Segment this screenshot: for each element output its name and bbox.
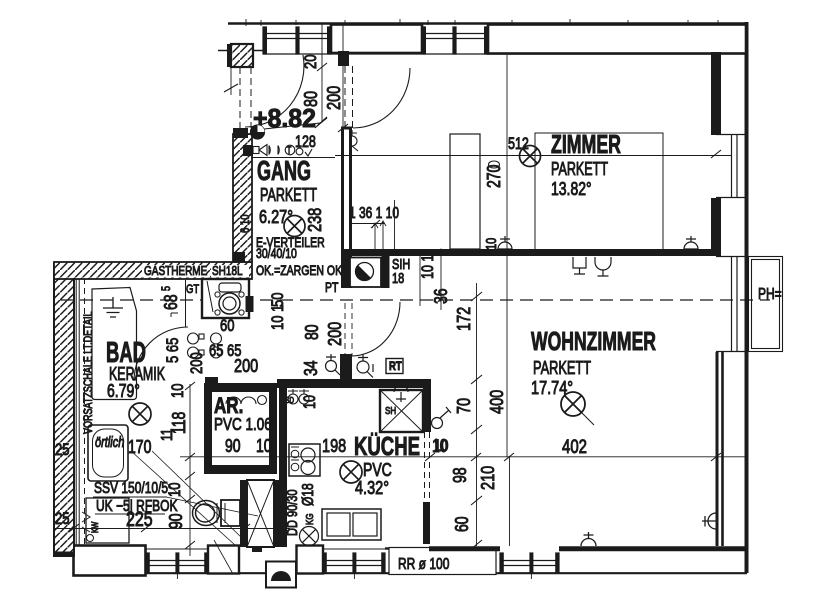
svg-text:10: 10 [434,436,449,455]
svg-text:10: 10 [256,436,272,456]
svg-text:198: 198 [322,436,346,457]
svg-text:200: 200 [234,356,258,377]
svg-text:SSV 150/10/5: SSV 150/10/5 [94,480,168,497]
svg-text:PT: PT [325,280,339,295]
svg-text:10 1: 10 1 [419,255,437,279]
svg-text:200: 200 [187,352,206,374]
svg-text:SD: SD [285,395,294,405]
svg-text:60: 60 [220,316,235,335]
svg-text:34: 34 [301,360,321,376]
svg-text:PVC 1.06°: PVC 1.06° [214,414,277,434]
svg-text:400: 400 [487,390,508,414]
svg-text:11: 11 [159,429,176,442]
svg-text:PARKETT: PARKETT [551,159,608,179]
svg-text:SH18L: SH18L [212,263,243,278]
svg-text:GANG: GANG [257,155,311,186]
svg-text:90: 90 [166,513,186,529]
svg-text:98: 98 [450,467,470,483]
svg-text:18: 18 [392,271,404,287]
svg-text:RR ø 100: RR ø 100 [398,556,450,573]
svg-text:SH: SH [385,406,396,417]
svg-text:13.82°: 13.82° [551,179,592,199]
svg-text:10: 10 [168,384,187,399]
svg-text:PARKETT: PARKETT [533,358,591,379]
svg-text:GT: GT [186,282,200,296]
svg-text:17.74°: 17.74° [531,378,573,399]
svg-text:68: 68 [161,294,181,310]
svg-text:172: 172 [454,307,475,331]
svg-text:80: 80 [301,91,322,107]
svg-text:VORSATZSCHALE LT.DETAIL: VORSATZSCHALE LT.DETAIL [82,311,95,434]
svg-text:PVC: PVC [363,460,392,480]
svg-text:10: 10 [484,238,500,250]
svg-text:238: 238 [305,208,326,232]
svg-text:225: 225 [126,508,153,531]
svg-text:402: 402 [562,436,587,458]
svg-text:ZIMMER: ZIMMER [551,129,621,159]
svg-text:GASTHERME: GASTHERME [144,263,208,278]
svg-text:KW: KW [90,521,100,533]
svg-text:80: 80 [302,324,322,340]
svg-text:örtlich: örtlich [95,435,124,451]
svg-text:200: 200 [325,322,346,346]
svg-text:6.79°: 6.79° [107,381,140,401]
svg-text:36: 36 [431,288,451,304]
svg-text:RT: RT [389,359,402,373]
svg-text:25: 25 [55,440,70,459]
svg-text:25: 25 [55,509,70,528]
svg-text:4.32°: 4.32° [355,478,389,499]
svg-text:170: 170 [128,437,151,457]
svg-text:1 36 1 10: 1 36 1 10 [349,205,399,222]
svg-text:5: 5 [160,286,173,291]
svg-text:5 65: 5 65 [163,338,182,363]
svg-text:PARKETT: PARKETT [260,185,317,205]
svg-text:DD 90/30: DD 90/30 [285,489,301,536]
svg-text:90: 90 [225,436,241,456]
svg-text:WOHNZIMMER: WOHNZIMMER [531,326,656,356]
svg-text:Ø18: Ø18 [300,483,317,506]
svg-text:20: 20 [301,55,320,70]
svg-text:OK.=ZARGEN OK.: OK.=ZARGEN OK. [256,263,345,278]
svg-text:270: 270 [484,165,504,188]
svg-text:30/40/10: 30/40/10 [256,246,297,261]
svg-text:10: 10 [301,395,319,409]
svg-text:6 10: 6 10 [238,214,252,233]
svg-text:200: 200 [324,86,345,110]
svg-text:70: 70 [454,398,475,414]
svg-text:KG: KG [305,513,316,525]
svg-text:210: 210 [478,466,499,490]
svg-text:60: 60 [452,516,472,532]
svg-text:10: 10 [165,483,184,498]
svg-text:10 1: 10 1 [268,305,287,330]
svg-text:512: 512 [508,135,529,153]
